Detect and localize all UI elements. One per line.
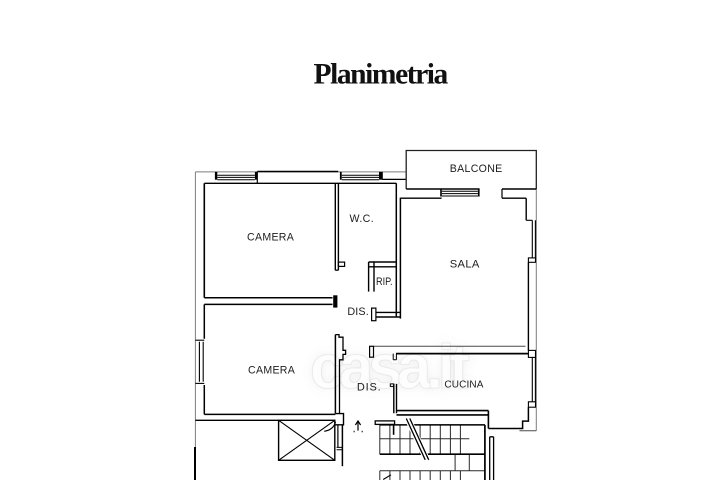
svg-text:RIP.: RIP. (376, 276, 393, 288)
svg-text:Planimetria: Planimetria (314, 59, 449, 91)
svg-text:CAMERA: CAMERA (248, 364, 296, 376)
svg-text:SALA: SALA (450, 259, 480, 271)
svg-text:CAMERA: CAMERA (247, 232, 295, 244)
svg-text:BALCONE: BALCONE (450, 163, 503, 175)
svg-text:DIS.: DIS. (357, 381, 382, 393)
svg-text:W.C.: W.C. (350, 213, 375, 225)
svg-text:DIS.: DIS. (347, 306, 368, 318)
svg-text:CUCINA: CUCINA (444, 380, 483, 391)
svg-text:casa.it: casa.it (310, 333, 470, 402)
